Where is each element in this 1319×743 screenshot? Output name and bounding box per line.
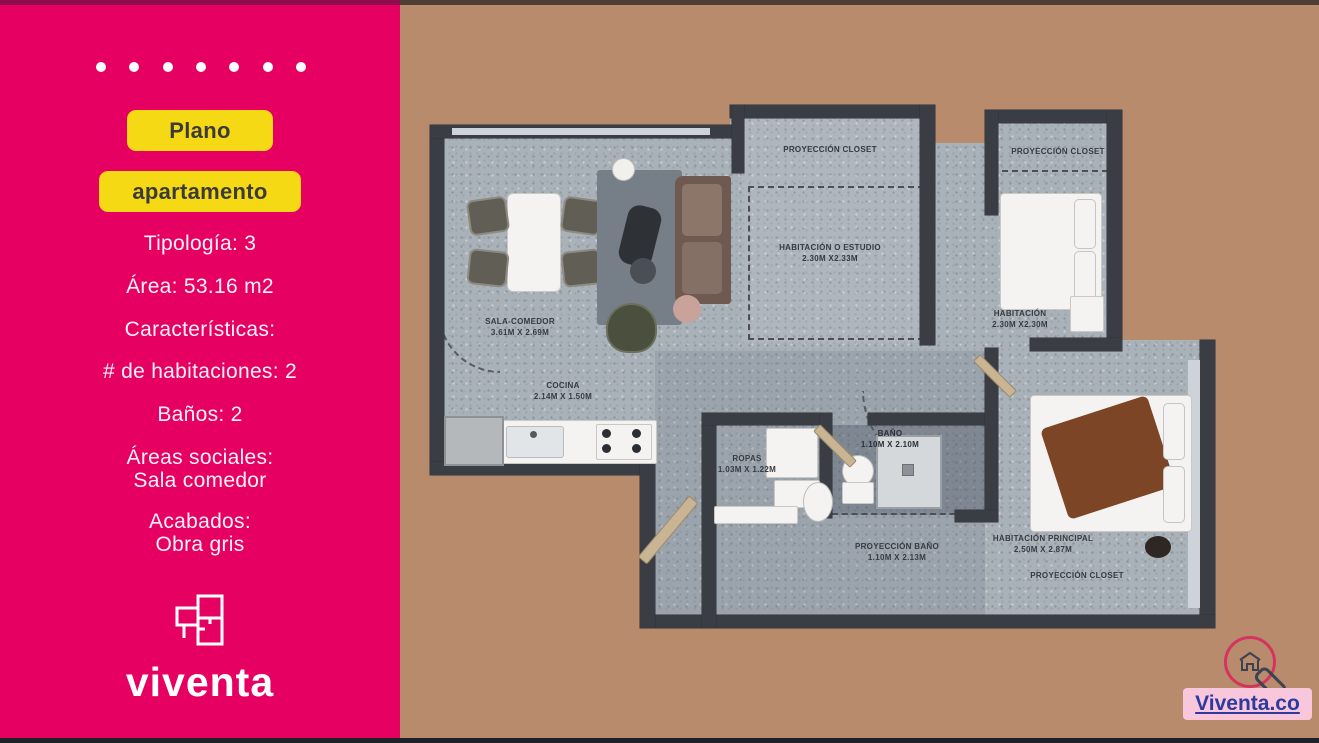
dining-table bbox=[507, 193, 561, 292]
chair bbox=[466, 248, 510, 288]
lounge-chair bbox=[606, 303, 657, 353]
room-dims: 2.50M X 2.87M bbox=[953, 544, 1133, 555]
apartamento-button[interactable]: apartamento bbox=[99, 171, 301, 212]
dot bbox=[163, 62, 173, 72]
spec-area: Área: 53.16 m2 bbox=[0, 275, 400, 299]
spec-banos: Baños: 2 bbox=[0, 403, 400, 427]
burner bbox=[632, 429, 641, 438]
wall bbox=[732, 105, 744, 173]
label-sala: SALA-COMEDOR 3.61M X 2.69M bbox=[450, 316, 590, 338]
label-hab2: HABITACIÓN 2.30M X2.30M bbox=[965, 308, 1075, 330]
room-dims: 2.14M X 1.50M bbox=[493, 391, 633, 402]
logo-wordmark: viventa bbox=[0, 662, 400, 703]
dots-row bbox=[96, 62, 306, 72]
dot bbox=[196, 62, 206, 72]
room-name: HABITACIÓN PRINCIPAL bbox=[953, 533, 1133, 544]
dot bbox=[296, 62, 306, 72]
floor-plan: PROYECCIÓN CLOSET HABITACIÓN O ESTUDIO 2… bbox=[430, 98, 1215, 628]
site-link[interactable]: Viventa.co bbox=[1183, 688, 1312, 720]
floorplan-logo-icon bbox=[169, 592, 231, 654]
pillow bbox=[1074, 251, 1096, 301]
pillow bbox=[1074, 199, 1096, 249]
wall bbox=[1200, 340, 1215, 628]
bath-sink bbox=[803, 482, 833, 522]
plan-cutout bbox=[985, 98, 1122, 110]
label-estudio: HABITACIÓN O ESTUDIO 2.30M X2.33M bbox=[750, 242, 910, 264]
plan-cutout bbox=[1122, 98, 1215, 340]
spec-tipologia: Tipología: 3 bbox=[0, 232, 400, 256]
spec-areas-sociales-value: Sala comedor bbox=[0, 469, 400, 493]
wall bbox=[920, 105, 935, 345]
top-border bbox=[0, 0, 400, 5]
dot bbox=[129, 62, 139, 72]
room-dims: 3.61M X 2.69M bbox=[450, 327, 590, 338]
wall bbox=[430, 125, 444, 475]
wall bbox=[730, 105, 935, 118]
closet-projection-line bbox=[992, 170, 1118, 172]
plan-cutout bbox=[935, 98, 985, 143]
plano-button[interactable]: Plano bbox=[127, 110, 273, 151]
dot bbox=[229, 62, 239, 72]
shower-drain bbox=[902, 464, 914, 476]
pillow bbox=[1163, 466, 1185, 523]
viventa-logo: viventa bbox=[0, 592, 400, 703]
wall bbox=[655, 615, 1215, 628]
ropas-shelf bbox=[714, 506, 798, 524]
label-proyeccion-closet-estudio: PROYECCIÓN CLOSET bbox=[750, 144, 910, 155]
side-table bbox=[612, 158, 635, 181]
label-cocina: COCINA 2.14M X 1.50M bbox=[493, 380, 633, 402]
wall bbox=[955, 510, 998, 522]
nightstand bbox=[1070, 296, 1104, 332]
burner bbox=[602, 429, 611, 438]
room-name: BAÑO bbox=[830, 428, 950, 439]
wall bbox=[1030, 338, 1122, 351]
room-name: ROPAS bbox=[687, 453, 807, 464]
faucet bbox=[530, 431, 537, 438]
burner bbox=[632, 444, 641, 453]
sidebar: Plano apartamento Tipología: 3 Área: 53.… bbox=[0, 0, 400, 743]
label-ropas: ROPAS 1.03M X 1.22M bbox=[687, 453, 807, 475]
wall bbox=[868, 413, 985, 425]
chair bbox=[466, 195, 511, 236]
room-dims: 1.10M X 2.10M bbox=[830, 439, 950, 450]
spec-acabados: Acabados: bbox=[0, 510, 400, 534]
window-band bbox=[452, 128, 710, 135]
pouf bbox=[673, 295, 701, 323]
spec-acabados-value: Obra gris bbox=[0, 533, 400, 557]
room-dims: 1.03M X 1.22M bbox=[687, 464, 807, 475]
wall bbox=[702, 413, 820, 425]
wall bbox=[985, 110, 998, 215]
room-dims: 2.30M X2.30M bbox=[965, 319, 1075, 330]
sofa-cushion bbox=[682, 184, 722, 236]
dot bbox=[263, 62, 273, 72]
spec-habitaciones: # de habitaciones: 2 bbox=[0, 360, 400, 384]
wall bbox=[985, 110, 1122, 123]
plan-cutout bbox=[430, 475, 642, 628]
label-principal: HABITACIÓN PRINCIPAL 2.50M X 2.87M bbox=[953, 533, 1133, 555]
toilet-tank bbox=[842, 482, 874, 504]
room-name: COCINA bbox=[493, 380, 633, 391]
label-proyeccion-closet-principal: PROYECCIÓN CLOSET bbox=[987, 570, 1167, 581]
room-dims: 2.30M X2.33M bbox=[750, 253, 910, 264]
pet bbox=[1145, 536, 1171, 558]
plan-cutout bbox=[730, 98, 935, 105]
burner bbox=[602, 444, 611, 453]
room-name: SALA-COMEDOR bbox=[450, 316, 590, 327]
spec-caracteristicas: Características: bbox=[0, 318, 400, 342]
sofa-cushion bbox=[682, 242, 722, 294]
bottom-border bbox=[0, 738, 1319, 743]
room-name: HABITACIÓN O ESTUDIO bbox=[750, 242, 910, 253]
plan-cutout bbox=[430, 98, 730, 125]
top-border bbox=[400, 0, 1319, 5]
dot bbox=[96, 62, 106, 72]
spec-areas-sociales: Áreas sociales: bbox=[0, 446, 400, 470]
label-proyeccion-closet-hab2: PROYECCIÓN CLOSET bbox=[993, 146, 1123, 157]
fridge bbox=[444, 416, 504, 466]
room-name: HABITACIÓN bbox=[965, 308, 1075, 319]
label-bano: BAÑO 1.10M X 2.10M bbox=[830, 428, 950, 450]
pillow bbox=[1163, 403, 1185, 460]
floor-cushion bbox=[630, 258, 656, 284]
